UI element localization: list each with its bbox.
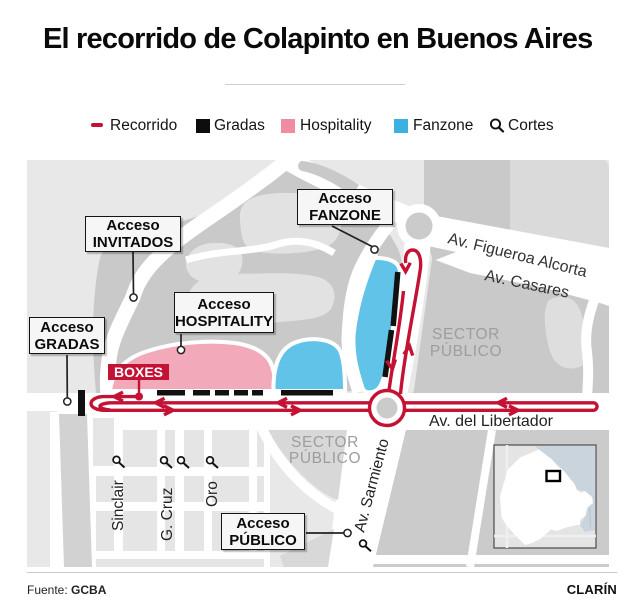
svg-text:PÚBLICO: PÚBLICO bbox=[430, 343, 502, 360]
svg-text:Oro: Oro bbox=[204, 481, 221, 507]
svg-text:PÚBLICO: PÚBLICO bbox=[289, 450, 361, 467]
svg-text:G. Cruz: G. Cruz bbox=[159, 488, 176, 541]
svg-text:SECTOR: SECTOR bbox=[291, 434, 359, 451]
svg-text:Av. del Libertador: Av. del Libertador bbox=[429, 413, 554, 430]
svg-text:Sinclair: Sinclair bbox=[110, 480, 127, 531]
svg-text:SECTOR: SECTOR bbox=[432, 326, 500, 343]
